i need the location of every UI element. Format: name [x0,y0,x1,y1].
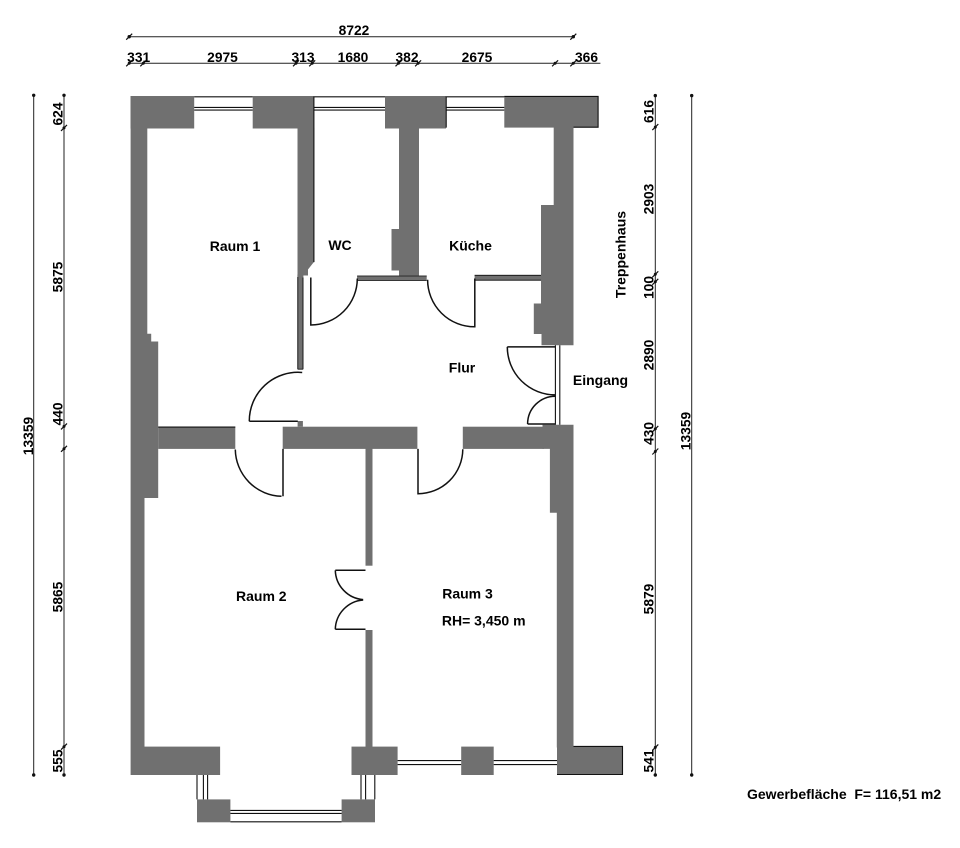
svg-text:Küche: Küche [449,238,492,254]
svg-text:Raum 1: Raum 1 [210,238,261,254]
svg-text:382: 382 [395,50,418,65]
svg-text:Treppenhaus: Treppenhaus [613,211,629,298]
svg-text:2975: 2975 [207,50,238,65]
svg-text:366: 366 [575,50,598,65]
svg-text:8722: 8722 [339,23,370,38]
svg-text:13359: 13359 [679,411,694,450]
svg-text:1680: 1680 [338,50,369,65]
svg-text:5875: 5875 [51,261,66,292]
svg-text:13359: 13359 [21,416,36,455]
svg-text:624: 624 [51,102,66,125]
svg-text:5879: 5879 [642,583,657,614]
svg-text:440: 440 [51,402,66,425]
svg-text:WC: WC [328,237,351,253]
svg-text:2675: 2675 [462,50,493,65]
svg-text:Flur: Flur [449,360,476,376]
svg-text:Raum 3: Raum 3 [442,586,493,602]
svg-text:Raum 2: Raum 2 [236,588,287,604]
svg-text:100: 100 [642,276,657,299]
svg-text:Gewerbefläche F= 116,51 m2: Gewerbefläche F= 116,51 m2 [747,786,941,802]
svg-text:331: 331 [127,50,150,65]
svg-text:555: 555 [51,749,66,772]
svg-text:430: 430 [642,422,657,445]
svg-text:5865: 5865 [51,581,66,612]
svg-text:313: 313 [291,50,314,65]
svg-text:RH= 3,450 m: RH= 3,450 m [442,613,526,629]
svg-text:541: 541 [642,749,657,772]
svg-text:Eingang: Eingang [573,372,628,388]
svg-text:2890: 2890 [642,339,657,370]
svg-text:2903: 2903 [642,183,657,214]
svg-text:616: 616 [642,100,657,123]
